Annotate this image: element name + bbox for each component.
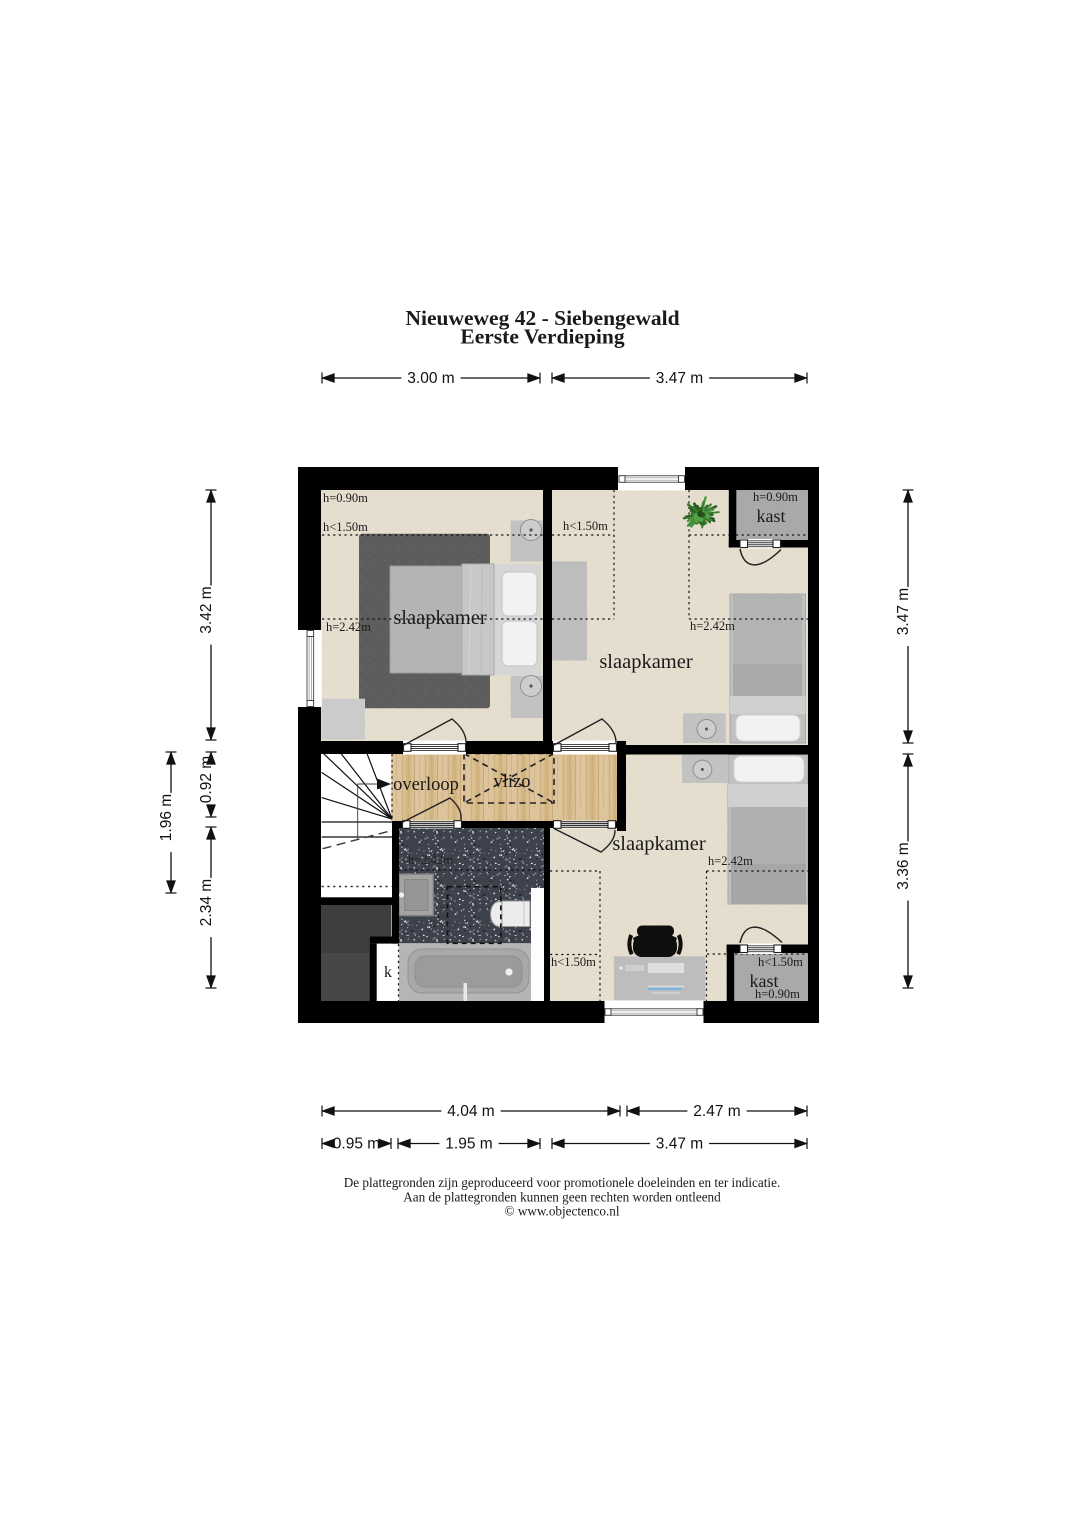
svg-text:h<1.50m: h<1.50m	[563, 519, 608, 533]
svg-text:h<1.50m: h<1.50m	[323, 520, 368, 534]
svg-text:Eerste Verdieping: Eerste Verdieping	[460, 325, 624, 349]
svg-text:2.47 m: 2.47 m	[693, 1103, 740, 1120]
svg-text:3.36 m: 3.36 m	[895, 842, 912, 889]
svg-text:3.42 m: 3.42 m	[198, 586, 215, 633]
svg-text:2.34 m: 2.34 m	[198, 879, 215, 926]
svg-text:h<1.50m: h<1.50m	[551, 955, 596, 969]
svg-text:Aan de plattegronden kunnen ge: Aan de plattegronden kunnen geen rechten…	[403, 1190, 721, 1205]
svg-text:h=2.42m: h=2.42m	[408, 853, 453, 867]
svg-text:h=0.90m: h=0.90m	[755, 987, 800, 1001]
svg-text:h=2.42m: h=2.42m	[326, 620, 371, 634]
svg-text:1.96 m: 1.96 m	[158, 794, 175, 841]
svg-text:3.00 m: 3.00 m	[407, 370, 454, 387]
svg-text:k: k	[384, 964, 392, 981]
svg-text:4.04 m: 4.04 m	[447, 1103, 494, 1120]
svg-text:© www.objectenco.nl: © www.objectenco.nl	[505, 1204, 620, 1219]
svg-text:h=2.42m: h=2.42m	[690, 619, 735, 633]
svg-text:slaapkamer: slaapkamer	[393, 607, 487, 629]
svg-text:slaapkamer: slaapkamer	[612, 833, 706, 855]
svg-text:0.95 m: 0.95 m	[333, 1136, 380, 1153]
svg-text:vlizo: vlizo	[494, 772, 531, 792]
svg-text:De plattegronden zijn geproduc: De plattegronden zijn geproduceerd voor …	[344, 1175, 781, 1190]
svg-text:3.47 m: 3.47 m	[656, 370, 703, 387]
svg-text:h<1.50m: h<1.50m	[758, 955, 803, 969]
svg-text:kast: kast	[757, 506, 786, 526]
svg-text:h=0.90m: h=0.90m	[323, 491, 368, 505]
svg-text:3.47 m: 3.47 m	[895, 588, 912, 635]
svg-text:3.47 m: 3.47 m	[656, 1136, 703, 1153]
svg-text:overloop: overloop	[393, 775, 459, 795]
svg-text:1.95 m: 1.95 m	[445, 1136, 492, 1153]
svg-text:slaapkamer: slaapkamer	[599, 651, 693, 673]
svg-text:h=2.42m: h=2.42m	[708, 854, 753, 868]
svg-text:h=0.90m: h=0.90m	[753, 490, 798, 504]
